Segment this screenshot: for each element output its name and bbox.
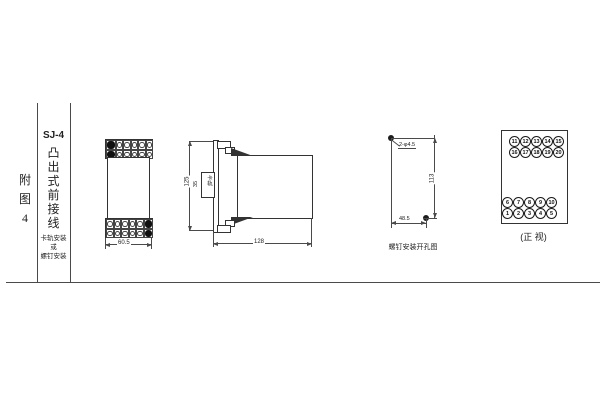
mounting-note-line: 卡轨安装 <box>38 234 69 243</box>
terminal-screw <box>123 140 131 150</box>
terminal-number: 1 <box>502 208 513 219</box>
terminal-number: 12 <box>520 136 531 147</box>
front-view-bottom-terminal-block <box>105 218 153 238</box>
terminal-number: 13 <box>531 136 542 147</box>
side-view-bottom-lug <box>217 225 231 233</box>
model-label: SJ-4 <box>38 130 69 141</box>
drill-height-dim: 113 <box>429 173 436 185</box>
title-char: 式 <box>38 174 69 188</box>
figure-index-column: 附 图 4 <box>17 171 33 228</box>
terminal-screw <box>146 140 154 150</box>
dim-arrow <box>105 243 110 247</box>
rail-label: 卡轨 <box>206 175 212 186</box>
terminal-number: 9 <box>535 197 546 208</box>
terminal-screw <box>129 229 137 239</box>
title-char: 凸 <box>38 146 69 160</box>
figure-index-char: 图 <box>17 190 33 209</box>
terminal-screw <box>116 140 124 150</box>
front-view-body <box>107 157 150 220</box>
drill-view-caption: 螺钉安装开孔图 <box>381 242 445 252</box>
table-border-vertical-right <box>70 103 71 282</box>
title-char: 接 <box>38 202 69 216</box>
terminal-number: 7 <box>513 197 524 208</box>
terminal-screw <box>114 219 122 229</box>
side-view-body <box>237 155 313 219</box>
mounting-note-line: 或 <box>38 243 69 252</box>
terminal-screw <box>114 229 122 239</box>
drill-top-line <box>391 138 434 139</box>
title-char: 前 <box>38 188 69 202</box>
side-height-dim: 125 <box>185 175 192 187</box>
figure-index-char: 4 <box>17 209 33 228</box>
terminal-number: 5 <box>546 208 557 219</box>
terminal-number: 18 <box>531 147 542 158</box>
figure-index-char: 附 <box>17 171 33 190</box>
terminal-number: 15 <box>553 136 564 147</box>
figure-page: 附 图 4 SJ-4 凸 出 式 前 接 线 卡轨安装 或 螺钉安装 60.5 <box>0 0 600 400</box>
terminal-screw <box>106 140 116 150</box>
dim-arrow <box>188 226 192 231</box>
dim-arrow <box>213 242 218 246</box>
terminal-number: 11 <box>509 136 520 147</box>
rail-width-dim: 35 <box>193 180 199 188</box>
dim-arrow <box>391 221 396 225</box>
dim-arrow <box>188 141 192 146</box>
terminal-screw <box>144 219 154 229</box>
table-border-horizontal <box>6 282 600 283</box>
terminal-screw <box>121 229 129 239</box>
mounting-note-line: 螺钉安装 <box>38 252 69 261</box>
terminal-screw <box>129 219 137 229</box>
drill-width-dim: 48.5 <box>398 216 411 222</box>
dim-arrow <box>307 242 312 246</box>
terminal-number: 3 <box>524 208 535 219</box>
terminal-number: 19 <box>542 147 553 158</box>
terminal-number: 14 <box>542 136 553 147</box>
drill-bottom-ext <box>426 218 427 228</box>
terminal-number: 6 <box>502 197 513 208</box>
terminal-screw <box>144 229 154 239</box>
mounting-note: 卡轨安装 或 螺钉安装 <box>38 234 69 261</box>
figure-title-column: 凸 出 式 前 接 线 <box>38 146 69 230</box>
terminal-number: 17 <box>520 147 531 158</box>
terminal-view-caption: (正 视) <box>501 230 566 243</box>
title-char: 出 <box>38 160 69 174</box>
front-view-top-terminal-block <box>105 139 153 159</box>
holes-label: 2-φ4.5 <box>398 142 416 149</box>
terminal-number: 4 <box>535 208 546 219</box>
terminal-number: 2 <box>513 208 524 219</box>
terminal-screw <box>136 219 144 229</box>
dim-arrow <box>147 243 152 247</box>
title-char: 线 <box>38 216 69 230</box>
terminal-screw <box>131 140 139 150</box>
terminal-number: 8 <box>524 197 535 208</box>
terminal-screw <box>106 219 114 229</box>
terminal-screw <box>136 229 144 239</box>
terminal-screw <box>106 229 114 239</box>
side-depth-dim: 128 <box>253 239 265 246</box>
terminal-screw <box>121 219 129 229</box>
dim-extension-line <box>190 230 214 231</box>
dim-extension-line <box>190 141 214 142</box>
dim-arrow <box>421 221 426 225</box>
terminal-number: 16 <box>509 147 520 158</box>
drill-left-line <box>391 138 392 228</box>
terminal-number: 20 <box>553 147 564 158</box>
dim-arrow <box>433 138 437 143</box>
terminal-screw <box>138 140 146 150</box>
front-width-dim: 60.5 <box>117 240 131 247</box>
terminal-number: 10 <box>546 197 557 208</box>
